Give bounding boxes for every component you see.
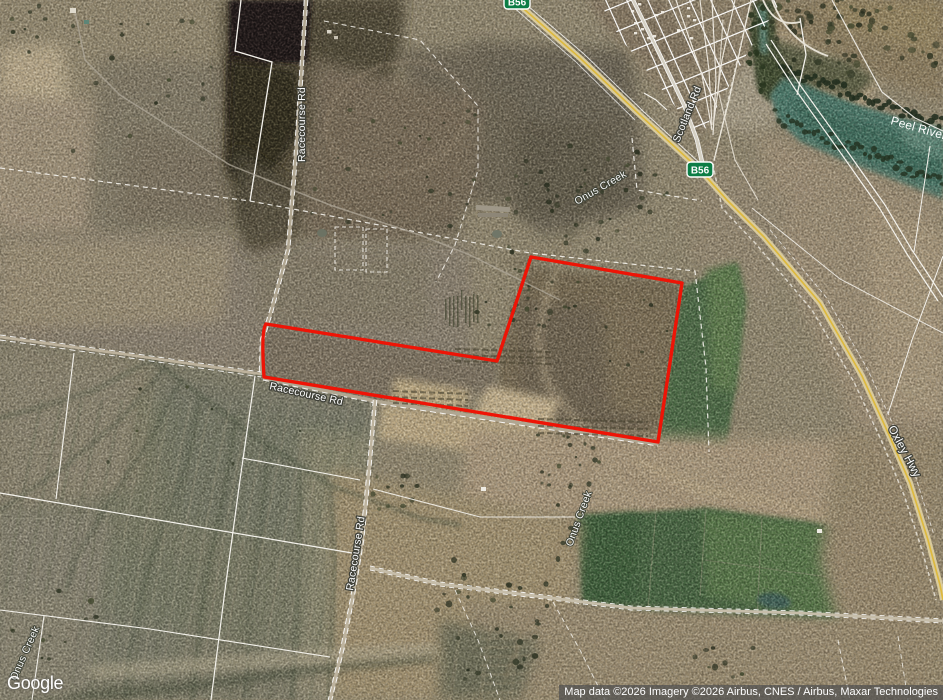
svg-text:B56: B56 xyxy=(691,166,710,177)
svg-text:Racecourse Rd: Racecourse Rd xyxy=(296,87,308,162)
svg-text:B56: B56 xyxy=(508,0,527,9)
